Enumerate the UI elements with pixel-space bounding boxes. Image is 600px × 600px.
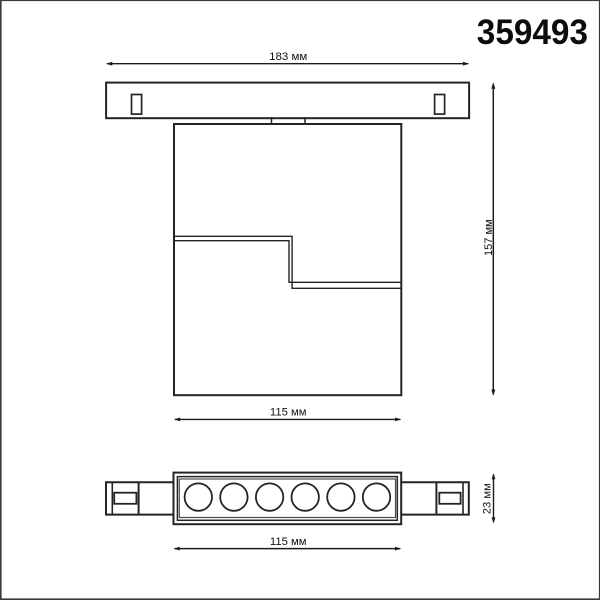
- svg-text:115 мм: 115 мм: [270, 407, 307, 419]
- svg-text:115 мм: 115 мм: [270, 536, 307, 548]
- svg-text:23 мм: 23 мм: [482, 483, 494, 514]
- svg-text:359493: 359493: [477, 12, 588, 52]
- svg-text:183 мм: 183 мм: [269, 51, 307, 63]
- svg-text:157 мм: 157 мм: [483, 219, 495, 256]
